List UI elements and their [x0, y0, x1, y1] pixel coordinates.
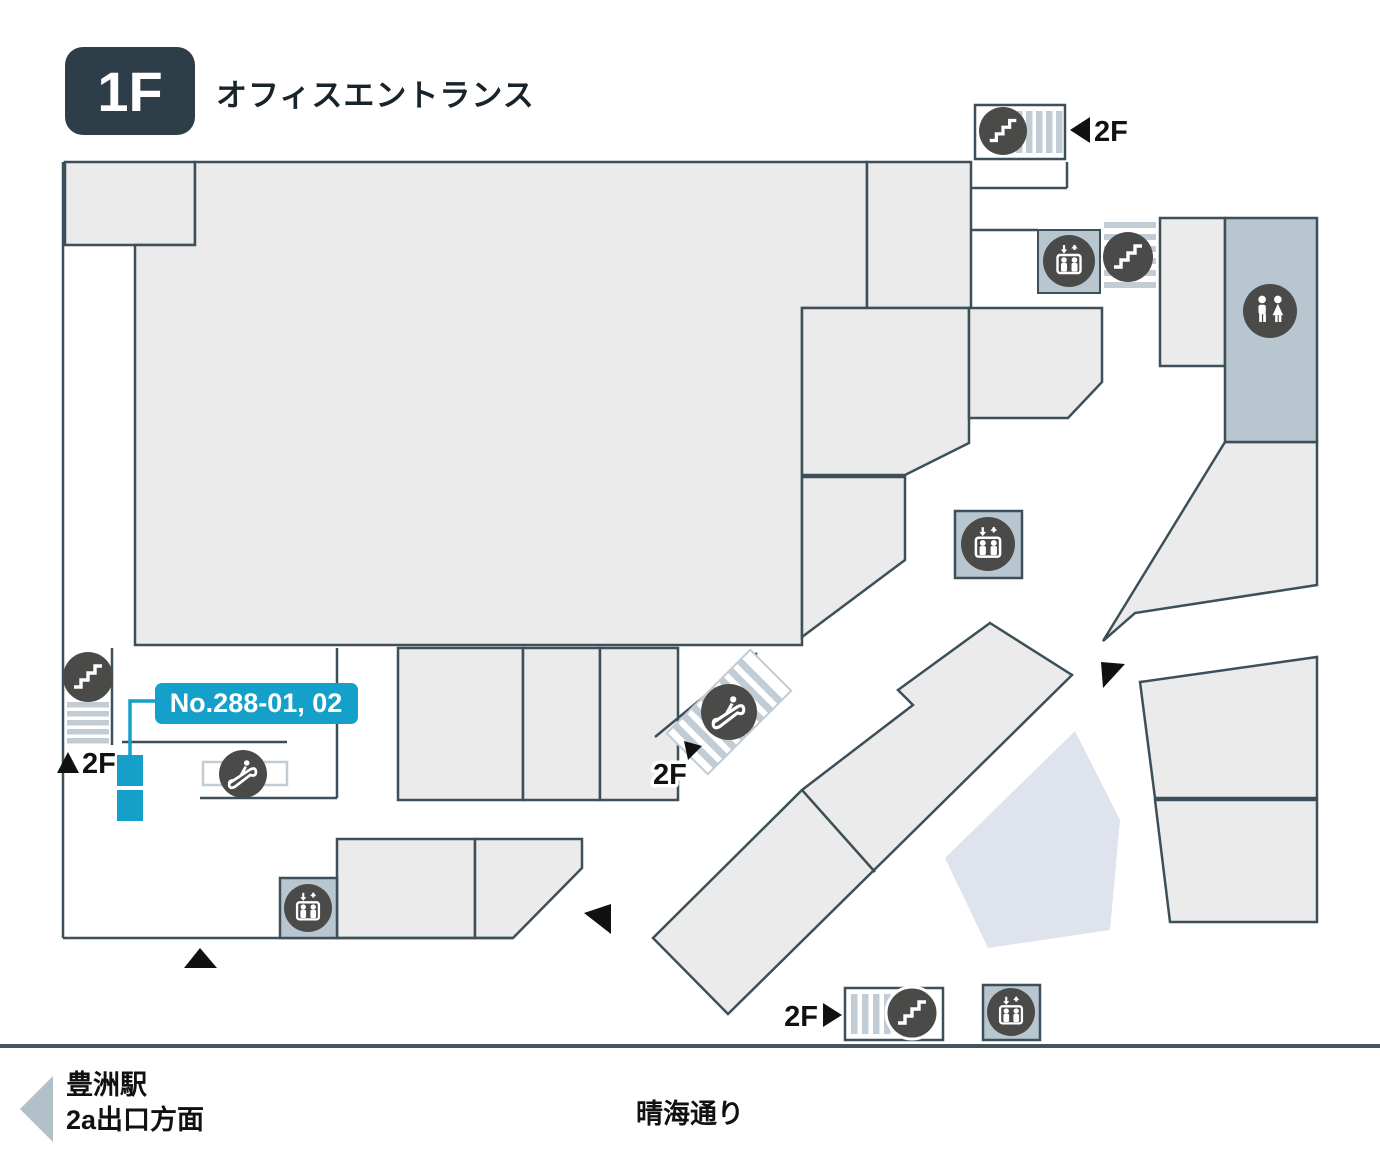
unit-marker	[117, 790, 143, 821]
stairs-bottom: 2F	[784, 987, 943, 1040]
floor-map-page: 2F	[0, 0, 1380, 1166]
tenant-block	[337, 839, 475, 938]
restroom-area	[1225, 218, 1317, 442]
stairs-upper	[1103, 219, 1156, 299]
footer-divider	[0, 1044, 1380, 1048]
floor-badge: 1F	[65, 47, 195, 135]
arrow-right-icon	[823, 1003, 842, 1027]
floor-map: 2F	[0, 0, 1380, 1166]
elevator-top-right	[1038, 230, 1100, 293]
restroom-icon	[1243, 284, 1297, 338]
stairs-left: 2F	[57, 652, 116, 780]
floor-badge-label: 1F	[97, 59, 162, 124]
tenant-block	[867, 162, 971, 308]
tenant-block	[802, 308, 969, 475]
tenant-block	[969, 308, 1102, 418]
page-title: オフィスエントランス	[216, 70, 535, 115]
arrow-left-icon	[584, 904, 611, 934]
tenant-block	[1140, 657, 1317, 798]
level-label: 2F	[82, 748, 116, 780]
station-name: 豊洲駅	[66, 1068, 204, 1103]
tenant-block	[1155, 800, 1317, 922]
arrow-up-icon	[57, 752, 79, 773]
elevator-bottom-right	[983, 985, 1040, 1040]
station-label: 豊洲駅 2a出口方面	[66, 1068, 204, 1138]
tenant-block	[523, 648, 600, 800]
arrow-down-left-icon	[1101, 662, 1125, 688]
level-label: 2F	[1094, 116, 1128, 148]
arrow-left-icon	[1070, 117, 1090, 143]
station-exit: 2a出口方面	[66, 1103, 204, 1138]
tenant-block	[65, 162, 195, 245]
station-direction-arrow-icon	[20, 1076, 53, 1142]
tenant-block-diagonal	[1103, 442, 1317, 641]
tenant-block	[802, 477, 905, 637]
unit-label-text: No.288-01, 02	[170, 688, 343, 718]
tenant-block	[398, 648, 523, 800]
arrow-up-icon	[184, 948, 217, 968]
elevator-icon	[1043, 235, 1095, 287]
tenant-block	[1160, 218, 1225, 366]
elevator-bottom-left	[280, 878, 337, 938]
elevator-center	[955, 511, 1022, 578]
elevator-icon	[284, 884, 332, 932]
elevator-icon	[961, 517, 1015, 571]
unit-marker	[117, 755, 143, 786]
tenant-block	[475, 839, 582, 938]
tenant-block-main	[135, 162, 867, 645]
level-label: 2F	[653, 759, 687, 791]
escalator-left	[203, 750, 287, 798]
level-label: 2F	[784, 1001, 818, 1033]
street-label: 晴海通り	[550, 1092, 830, 1131]
elevator-icon	[987, 988, 1035, 1036]
stairs-top-right: 2F	[975, 105, 1128, 159]
